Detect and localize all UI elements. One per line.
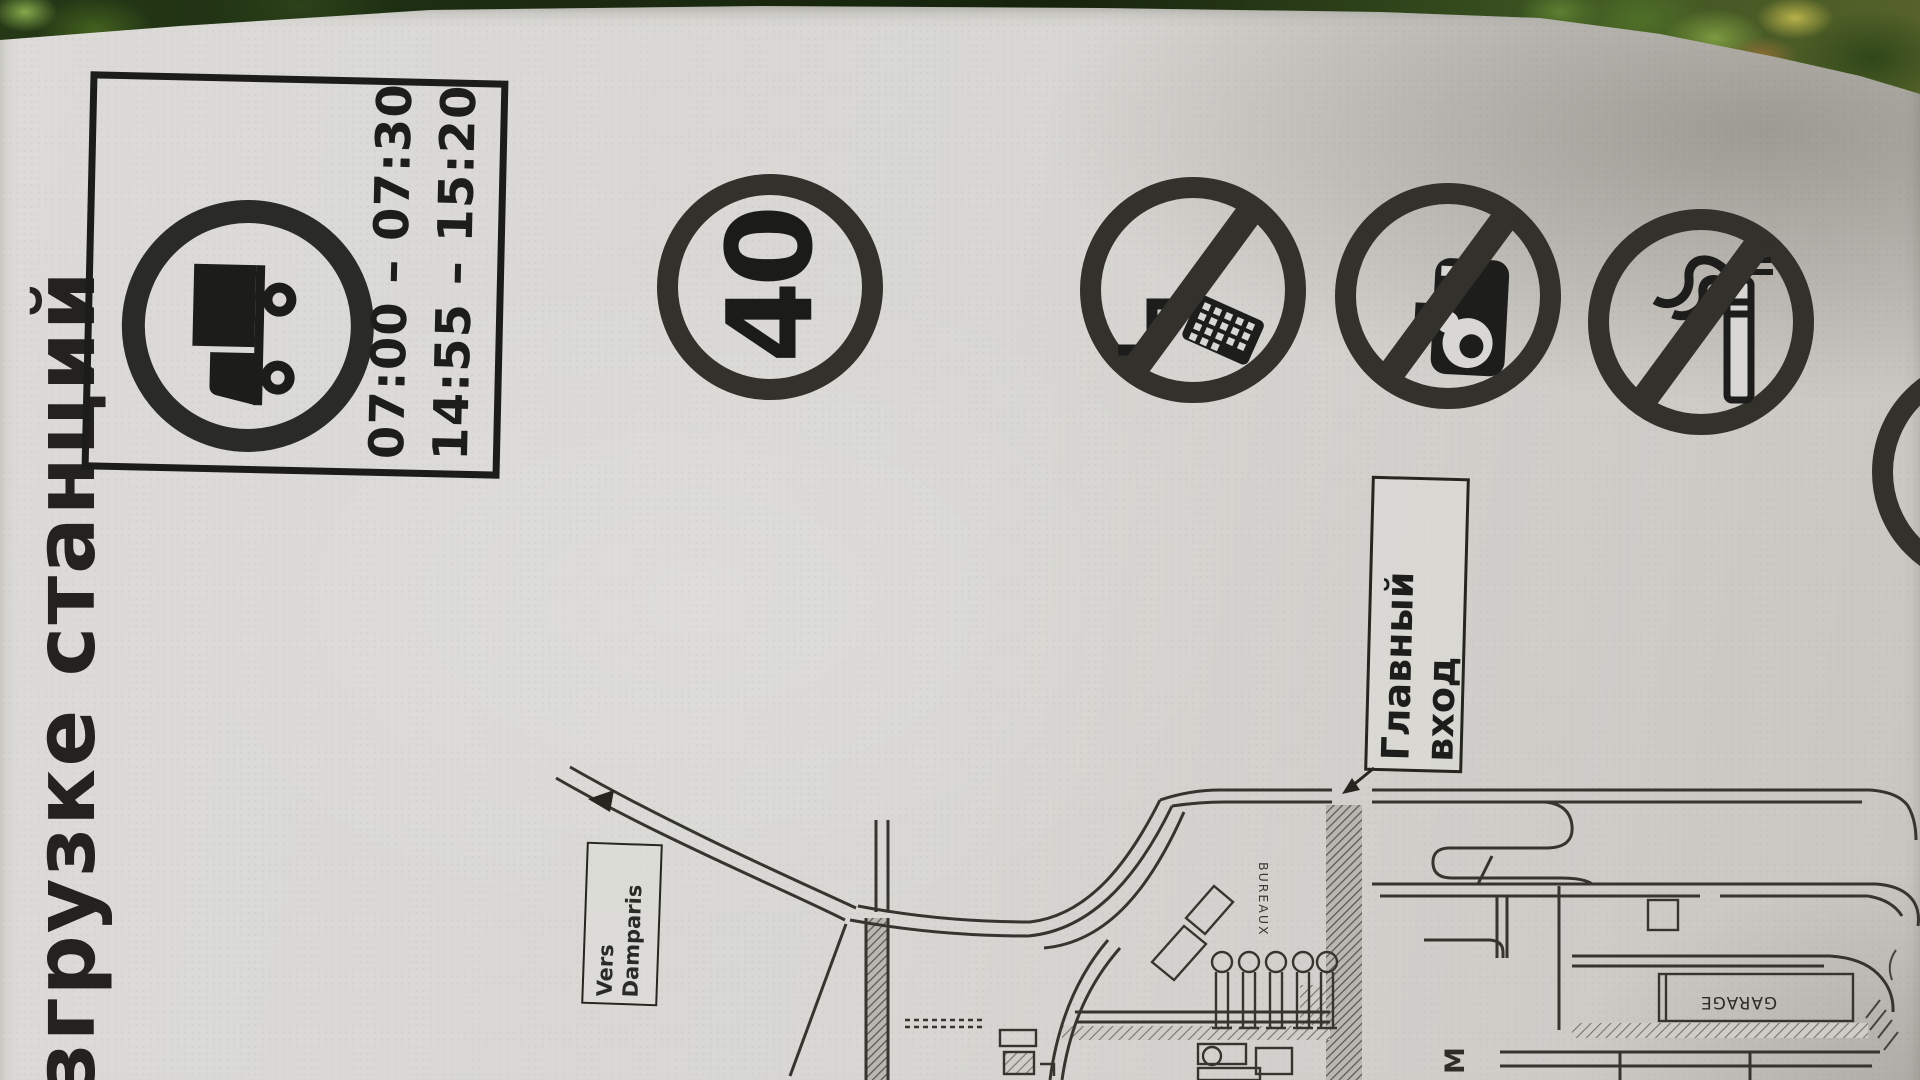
m-label: M (1440, 1047, 1471, 1074)
damparis-arrowhead (588, 790, 614, 812)
hatched-roads (866, 805, 1868, 1080)
garage-label: GARAGE (1700, 992, 1777, 1012)
bureaux-label: BUREAUX (1256, 862, 1271, 937)
site-map (0, 0, 1920, 1080)
photo-of-document: и разгрузке станций 07:00 – 07:30 14:55 … (0, 0, 1920, 1080)
